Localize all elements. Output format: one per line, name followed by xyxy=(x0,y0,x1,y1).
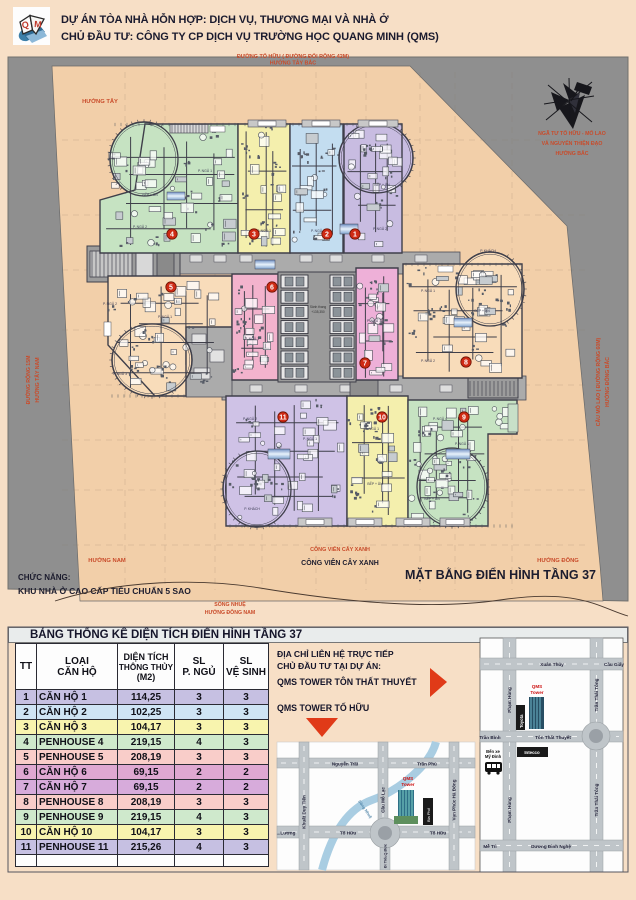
svg-text:QMS: QMS xyxy=(532,684,542,689)
svg-text:Cầu Mỗ Lạc: Cầu Mỗ Lạc xyxy=(380,787,386,813)
svg-text:Trần Thái Tông: Trần Thái Tông xyxy=(594,678,599,711)
svg-text:Đi TiểuQ.Đức: Đi TiểuQ.Đức xyxy=(384,844,388,868)
svg-text:Cầu Giấy: Cầu Giấy xyxy=(604,661,624,667)
svg-text:Mễ Trì: Mễ Trì xyxy=(483,843,496,849)
svg-text:Trần Bình: Trần Bình xyxy=(479,735,500,740)
svg-text:QMS: QMS xyxy=(403,776,413,781)
svg-text:Nguyễn Trãi: Nguyễn Trãi xyxy=(332,761,358,767)
svg-text:Trần Phú: Trần Phú xyxy=(417,762,437,767)
svg-text:Vạn Phúc Hà Đông: Vạn Phúc Hà Đông xyxy=(452,779,457,820)
svg-text:Trần Thái Tông: Trần Thái Tông xyxy=(594,783,599,816)
svg-text:Phạm Hùng: Phạm Hùng xyxy=(507,687,512,713)
svg-text:Tower: Tower xyxy=(401,782,414,787)
svg-text:Intecco: Intecco xyxy=(524,750,540,755)
svg-text:Mỹ Đình: Mỹ Đình xyxy=(485,754,502,759)
svg-text:Xuân Thủy: Xuân Thủy xyxy=(540,662,564,667)
svg-text:Tố Hữu: Tố Hữu xyxy=(340,830,357,836)
svg-text:Tower: Tower xyxy=(530,690,543,695)
svg-text:Tôn Thất Thuyết: Tôn Thất Thuyết xyxy=(535,734,571,740)
svg-text:Dương Đình Nghệ: Dương Đình Nghệ xyxy=(531,844,571,849)
svg-text:Bia Phố: Bia Phố xyxy=(426,807,431,822)
svg-text:...Lương: ...Lương xyxy=(277,831,296,836)
svg-text:Khuất Duy Tiến: Khuất Duy Tiến xyxy=(301,795,307,829)
svg-text:Toyota: Toyota xyxy=(519,714,524,728)
svg-text:Phạm Hùng: Phạm Hùng xyxy=(507,797,512,823)
svg-text:Tố Hữu: Tố Hữu xyxy=(430,830,447,836)
